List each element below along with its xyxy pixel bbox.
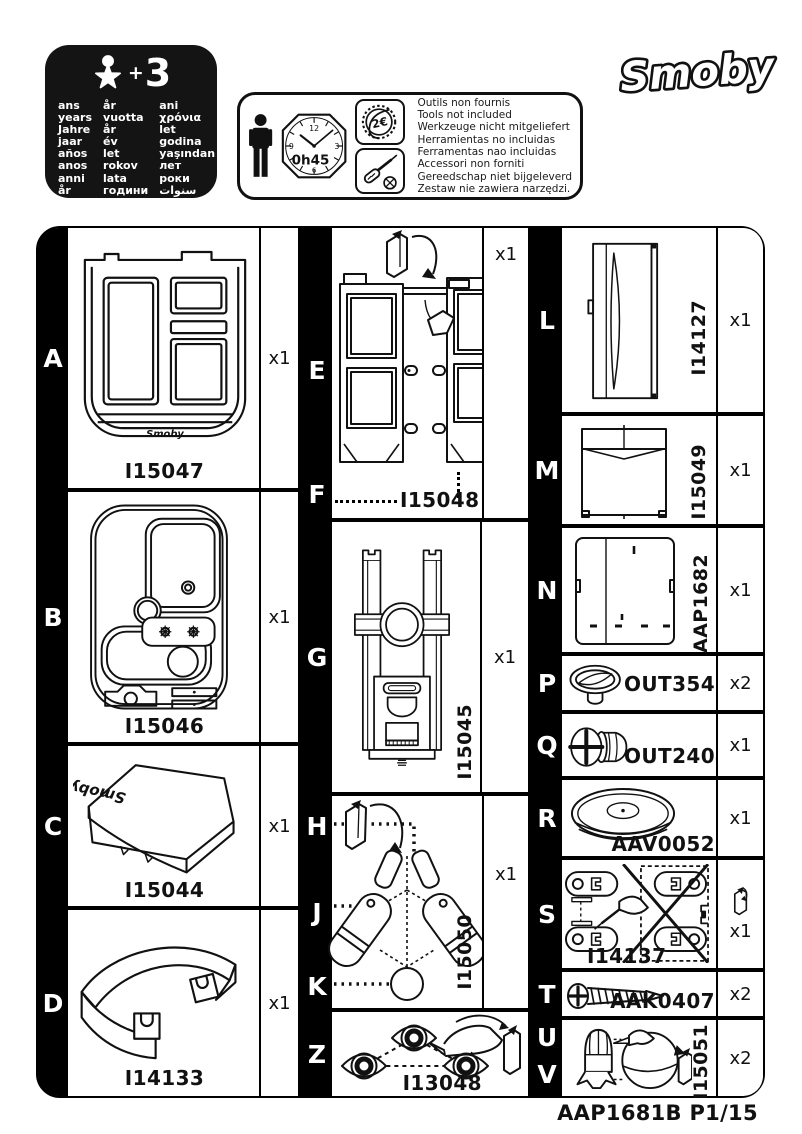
letter-label: S	[538, 900, 556, 929]
sticker-icon	[346, 804, 366, 849]
part-b-code: I15046	[68, 714, 261, 738]
part-cell-s: S I14137	[530, 858, 765, 970]
part-b-qty: x1	[259, 492, 298, 742]
part-letter-a: A	[38, 228, 68, 488]
part-cell-ef: E F	[300, 226, 530, 520]
star-person-icon	[91, 51, 125, 95]
hand-icon	[619, 897, 648, 914]
part-g-qty: x1	[480, 522, 528, 792]
letter-label-e: E	[302, 356, 332, 385]
part-ef-qty: x1	[482, 228, 528, 518]
part-letter-uv: U V	[532, 1020, 562, 1096]
part-s-code: I14137	[587, 944, 666, 968]
screwdriver-icon	[360, 151, 400, 191]
tool-pictograms: 2€	[355, 99, 405, 194]
part-cell-uv: U V I15051 x2	[530, 1018, 765, 1098]
svg-text:Smoby: Smoby	[619, 43, 778, 101]
part-cell-hjk: H J K	[300, 794, 530, 1010]
part-cell-m: M I15049 x1	[530, 414, 765, 526]
part-letter-ef: E F	[302, 228, 332, 518]
part-cell-t: T AAK0407 x2	[530, 970, 765, 1018]
part-cell-c: C Smoby I15044 x1	[36, 744, 300, 908]
part-cell-z: Z I13048	[300, 1010, 530, 1098]
part-uv-qty: x2	[716, 1020, 763, 1096]
qty-label: x2	[729, 1048, 751, 1069]
part-l-illustration	[576, 240, 678, 402]
age-lang-col-2: årvuottaårévletrokovlataгодини	[103, 100, 148, 197]
part-n-illustration	[570, 534, 680, 648]
part-q-code: OUT2404	[624, 744, 729, 768]
callout-dotted-line	[335, 500, 397, 503]
part-letter-d: D	[38, 910, 68, 1096]
clock-9: 9	[289, 142, 294, 151]
letter-label: B	[43, 603, 62, 632]
part-letter-q: Q	[532, 714, 562, 776]
qty-label: x1	[729, 460, 751, 481]
qty-label: x1	[494, 647, 516, 668]
part-cell-a: A Smoby I15047 x1	[36, 226, 300, 490]
part-b-illustration	[84, 501, 234, 713]
age-lang-col-3: aniχρόνιαletgodinayaşındanлетрокиسنوات	[159, 100, 215, 197]
qty-label: x1	[729, 808, 751, 829]
part-d-illustration	[68, 920, 253, 1066]
part-m-qty: x1	[716, 416, 763, 524]
letter-label-f: F	[302, 480, 332, 509]
part-c-code: I15044	[68, 878, 261, 902]
letter-label: Z	[308, 1040, 326, 1069]
part-a-code: I15047	[68, 459, 261, 483]
part-m-illustration	[572, 423, 676, 521]
qty-label: x2	[729, 984, 751, 1005]
document-reference-code: AAP1681B P1/15	[545, 1101, 770, 1125]
screwdriver-toolbox	[355, 148, 405, 194]
part-r-code: AAV0052	[611, 832, 715, 856]
part-a-qty: x1	[259, 228, 298, 488]
part-cell-r: R AAV0052 x1	[530, 778, 765, 858]
letter-label-v: V	[532, 1060, 562, 1089]
letter-label: R	[537, 804, 556, 833]
qty-label: x1	[729, 580, 751, 601]
part-cell-g: G I15045 x1	[300, 520, 530, 794]
clock-3: 3	[335, 142, 340, 151]
qty-label: x1	[268, 993, 290, 1014]
smoby-logo: Smoby Smoby	[612, 42, 782, 102]
part-n-code: AAP1682	[690, 554, 712, 653]
parts-grid: A Smoby I15047 x1 B	[36, 226, 765, 1098]
part-p-qty: x2	[716, 656, 763, 710]
qty-label: x1	[729, 735, 751, 756]
part-letter-m: M	[532, 416, 562, 524]
part-cell-b: B I15046 x1	[36, 490, 300, 744]
part-letter-r: R	[532, 780, 562, 856]
age-plus: +	[128, 62, 144, 84]
qty-label: x1	[268, 348, 290, 369]
part-ef-code: I15048	[400, 488, 479, 512]
hand-icon	[444, 1026, 502, 1056]
assembly-time-clock-icon: 12 3 6 9 0h45	[280, 100, 348, 192]
qty-label: x2	[729, 673, 751, 694]
letter-label: T	[538, 980, 555, 1009]
adult-person-icon	[248, 101, 273, 191]
clock-12: 12	[309, 124, 319, 133]
qty-label: x1	[495, 244, 517, 265]
coin-2-euro-icon: 2€	[360, 103, 400, 141]
part-m-code: I15049	[688, 444, 710, 520]
part-g-code: I15045	[454, 704, 476, 780]
part-letter-l: L	[532, 228, 562, 412]
letter-label: C	[44, 812, 62, 841]
part-letter-c: C	[38, 746, 68, 906]
part-hjk-code: I15050	[454, 914, 476, 990]
part-r-qty: x1	[716, 780, 763, 856]
part-l-qty: x1	[716, 228, 763, 412]
part-d-code: I14133	[68, 1066, 261, 1090]
part-letter-b: B	[38, 492, 68, 742]
part-letter-t: T	[532, 972, 562, 1016]
sticker-icon	[504, 1030, 520, 1074]
svg-text:Smoby: Smoby	[146, 429, 184, 440]
age-languages: ansyearsJahrejaarañosanosanniår årvuotta…	[45, 97, 217, 197]
letter-label: A	[43, 344, 62, 373]
part-l-code: I14127	[688, 300, 710, 376]
part-c-qty: x1	[259, 746, 298, 906]
part-cell-l: L I14127 x1	[530, 226, 765, 414]
letter-label: D	[43, 989, 64, 1018]
letter-label: P	[538, 669, 556, 698]
part-z-code: I13048	[403, 1071, 482, 1095]
qty-label: x1	[268, 816, 290, 837]
part-p-illustration	[564, 661, 630, 709]
part-q-illustration	[564, 722, 630, 772]
part-t-qty: x2	[716, 972, 763, 1016]
part-cell-n: N AAP1682 x1	[530, 526, 765, 654]
age-badge: + 3 ansyearsJahrejaarañosanosanniår årvu…	[45, 45, 217, 198]
letter-label-u: U	[532, 1023, 562, 1052]
part-t-code: AAK0407	[610, 989, 715, 1013]
part-uv-illustration	[566, 1024, 692, 1093]
tools-not-included-notes: Outils non fournisTools not includedWerk…	[417, 97, 572, 195]
part-s-qty: x1	[716, 860, 763, 968]
letter-label: N	[537, 576, 558, 605]
age-lang-col-1: ansyearsJahrejaarañosanosanniår	[58, 100, 92, 197]
part-letter-n: N	[532, 528, 562, 652]
part-hjk-qty: x1	[482, 796, 528, 1008]
letter-label: L	[539, 306, 555, 335]
part-letter-g: G	[302, 522, 332, 792]
age-number: 3	[145, 54, 171, 92]
age-badge-top: + 3	[45, 49, 217, 97]
no-coin-toolbox: 2€	[355, 99, 405, 145]
part-g-illustration	[342, 544, 462, 766]
qty-label: x1	[268, 607, 290, 628]
qty-label: x1	[729, 921, 751, 942]
part-letter-p: P	[532, 656, 562, 710]
sticker-icon	[732, 886, 750, 918]
part-d-qty: x1	[259, 910, 298, 1096]
part-letter-z: Z	[302, 1012, 332, 1096]
qty-label: x1	[495, 864, 517, 885]
letter-label: M	[535, 456, 560, 485]
part-q-qty: x1	[716, 714, 763, 776]
part-letter-s: S	[532, 860, 562, 968]
part-a-illustration: Smoby	[71, 240, 259, 453]
letter-label: Q	[536, 731, 557, 760]
part-cell-p: P OUT3547 x2	[530, 654, 765, 712]
part-p-code: OUT3547	[624, 672, 729, 696]
assembly-info-box: 12 3 6 9 0h45 2€	[237, 92, 583, 200]
part-c-illustration: Smoby	[73, 752, 253, 879]
part-cell-q: Q OUT2404 x1	[530, 712, 765, 778]
assembly-duration: 0h45	[292, 152, 330, 168]
part-n-qty: x1	[716, 528, 763, 652]
qty-label: x1	[729, 310, 751, 331]
coin-value: 2€	[371, 114, 389, 131]
part-cell-d: D I14133 x1	[36, 908, 300, 1098]
letter-label: G	[307, 643, 328, 672]
sticker-icon	[387, 234, 407, 277]
part-uv-code: I15051	[690, 1024, 712, 1100]
